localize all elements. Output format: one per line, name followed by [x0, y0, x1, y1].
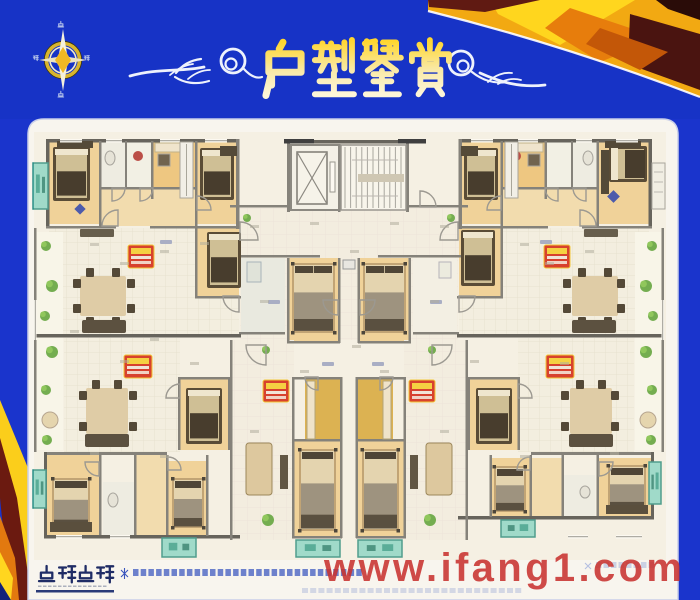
svg-text:www.ifang1.com: www.ifang1.com — [323, 546, 682, 590]
